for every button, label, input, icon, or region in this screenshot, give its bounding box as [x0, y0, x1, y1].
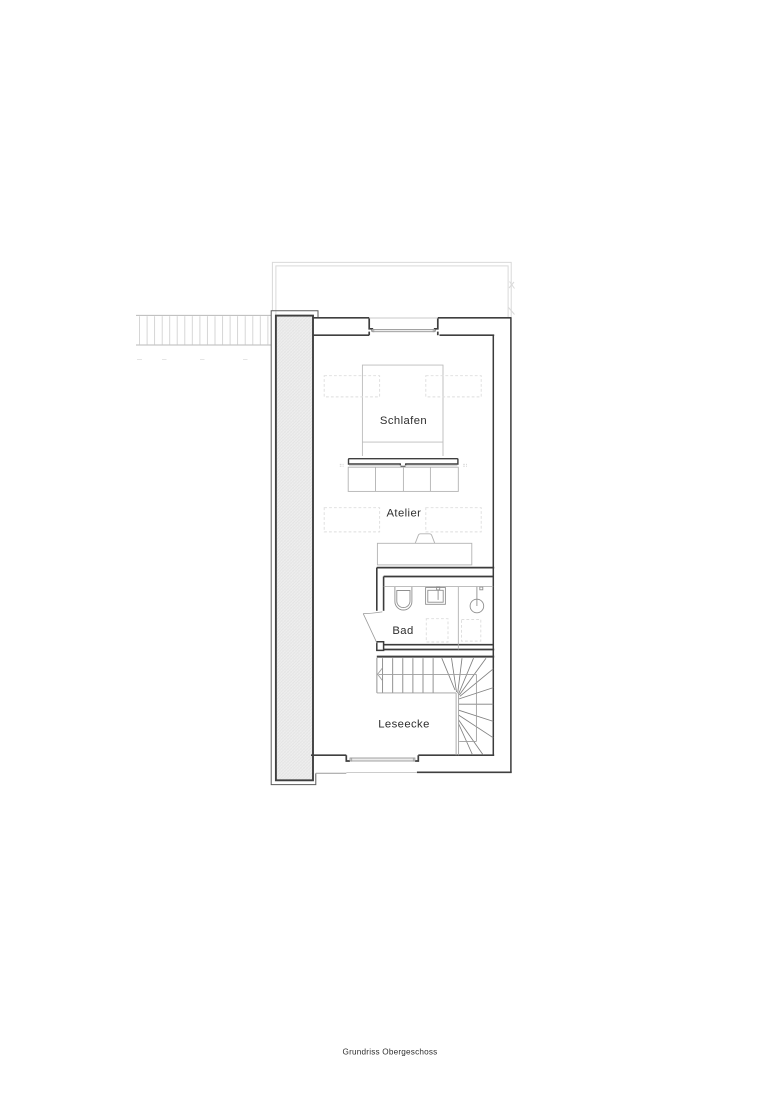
svg-text:Grundriss Obergeschoss: Grundriss Obergeschoss — [343, 1048, 438, 1057]
svg-text:Bad: Bad — [392, 625, 413, 637]
svg-text:Leseecke: Leseecke — [378, 718, 430, 730]
svg-text:Schlafen: Schlafen — [380, 415, 427, 427]
svg-text:Atelier: Atelier — [386, 508, 421, 520]
